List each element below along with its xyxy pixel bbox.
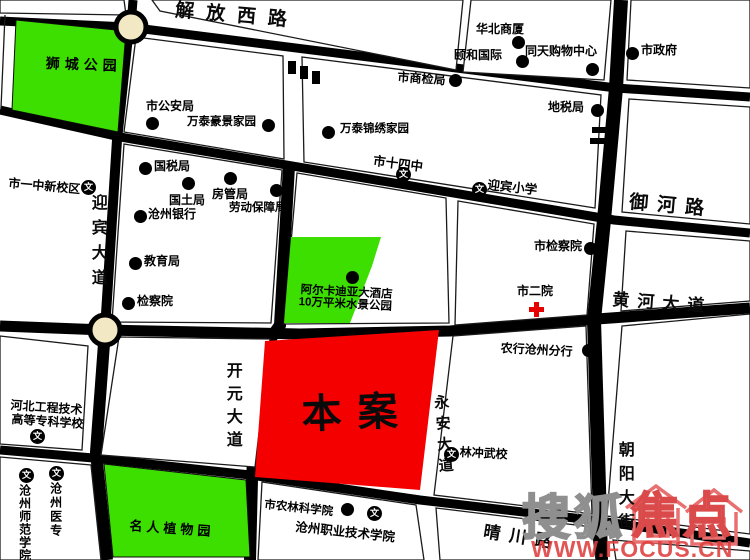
- school-label-linchong-wuxiao: 林冲武校: [459, 446, 508, 461]
- poi-label-laodong-baozhang-ju: 劳动保障局: [229, 202, 287, 214]
- poi-label-yihe-guoji: 颐和国际: [454, 49, 502, 62]
- school-label-cangzhou-yizhuan: 沧州医专: [49, 482, 62, 538]
- school-icon-cangzhou-zhiye: 文: [367, 506, 382, 521]
- roundabout-north: [116, 12, 146, 42]
- school-icon-cangzhou-yizhuan: 文: [49, 466, 64, 481]
- road-label-kaiyuan: 开元大道: [223, 362, 240, 454]
- school-icon-glyph: 文: [52, 468, 61, 478]
- poi-dot-guoshui-ju: [139, 162, 152, 175]
- tick: [592, 127, 609, 133]
- poi-dot-wantai-haojing: [262, 119, 275, 132]
- school-icon-cangzhou-shifan: 文: [19, 468, 34, 483]
- poi-dot-guotu-ju: [182, 177, 195, 190]
- roundabout-south: [90, 315, 120, 345]
- tick: [590, 138, 607, 144]
- tick: [312, 71, 320, 84]
- city-map: 解放西路 御河路 黄河大道 晴川路 迎宾大道 开元大道 永安大道 朝阳大街 狮城…: [0, 0, 750, 560]
- tick: [288, 61, 296, 74]
- map-canvas: [0, 0, 750, 560]
- poi-dot-jianchayuan: [122, 297, 135, 310]
- poi-label-guoshui-ju: 国税局: [154, 160, 190, 173]
- school-icon-yingbin-xiaoxue: 文: [472, 182, 487, 197]
- school-icon-glyph: 文: [447, 449, 456, 459]
- watermark-url: WWW.FOCUS.CN: [531, 537, 733, 560]
- park-label-shicheng: 狮城公园: [45, 56, 121, 73]
- poi-dot-cangzhou-yinhang: [134, 210, 147, 223]
- poi-dot-shi-gongan-ju: [146, 117, 159, 130]
- poi-dot-fangguan-ju: [224, 172, 237, 185]
- school-icon-glyph: 文: [22, 470, 31, 480]
- school-icon-glyph: 文: [475, 184, 484, 194]
- school-icon-glyph: 文: [370, 508, 379, 518]
- poi-label-tongtian-gouwu: 同天购物中心: [525, 45, 597, 58]
- road-label-yingbin: 迎宾大道: [88, 194, 105, 294]
- poi-dot-huabei-shangsha: [512, 36, 525, 49]
- site-label-benan: 本案: [301, 390, 414, 436]
- tick: [300, 66, 308, 79]
- poi-label-shi-jianchayuan: 市检察院: [534, 240, 582, 253]
- poi-dot-laodong-baozhang-ju: [270, 184, 283, 197]
- hospital-cross-icon: [529, 302, 544, 317]
- school-icon-hebei-gongcheng: 文: [30, 429, 45, 444]
- hospital-label-shi-er-yuan: 市二院: [517, 285, 553, 298]
- poi-label-shi-shangjian-ju: 市商检局: [397, 71, 446, 87]
- poi-dot-shi-nonglin: [341, 503, 354, 516]
- block: [101, 337, 270, 467]
- poi-label-jianchayuan: 检察院: [137, 295, 173, 308]
- poi-dot-jiaoyu-ju: [129, 257, 142, 270]
- poi-label-guotu-ju: 国土局: [169, 194, 205, 207]
- poi-label-wantai-haojing: 万泰豪景家园: [187, 116, 256, 128]
- poi-label-huabei-shangsha: 华北商厦: [476, 23, 524, 36]
- poi-label-shi-zhengfu: 市政府: [641, 44, 677, 57]
- poi-dot-hotel: [346, 271, 359, 284]
- poi-label-dishui-ju: 地税局: [548, 101, 584, 114]
- school-icon-linchong-wuxiao: 文: [444, 447, 459, 462]
- school-icon-glyph: 文: [84, 182, 93, 192]
- school-icon-glyph: 文: [33, 431, 42, 441]
- poi-label-wantai-jinxiu: 万泰锦绣家园: [340, 123, 409, 135]
- poi-dot-dishui-ju: [591, 104, 604, 117]
- watermark-brand-right: 焦点: [631, 492, 735, 542]
- poi-dot-wantai-jinxiu: [322, 126, 335, 139]
- poi-dot-shi-jianchayuan: [584, 242, 597, 255]
- park-mingren-botanical: [104, 464, 250, 557]
- poi-dot-nonghang-fenhang: [582, 344, 595, 357]
- poi-dot-shi-shangjian-ju: [449, 74, 462, 87]
- poi-dot-tongtian-gouwu: [586, 63, 599, 76]
- poi-label-cangzhou-yinhang: 沧州银行: [148, 208, 196, 221]
- poi-label-shi-gongan-ju: 市公安局: [146, 100, 194, 113]
- school-label-cangzhou-shifan: 沧州师范学院: [18, 484, 31, 560]
- poi-label-fangguan-ju: 房管局: [212, 188, 248, 201]
- school-icon-shiyizhong: 文: [81, 180, 96, 195]
- poi-dot-shi-zhengfu: [626, 47, 639, 60]
- block: [0, 0, 126, 15]
- poi-label-jiaoyu-ju: 教育局: [144, 255, 180, 268]
